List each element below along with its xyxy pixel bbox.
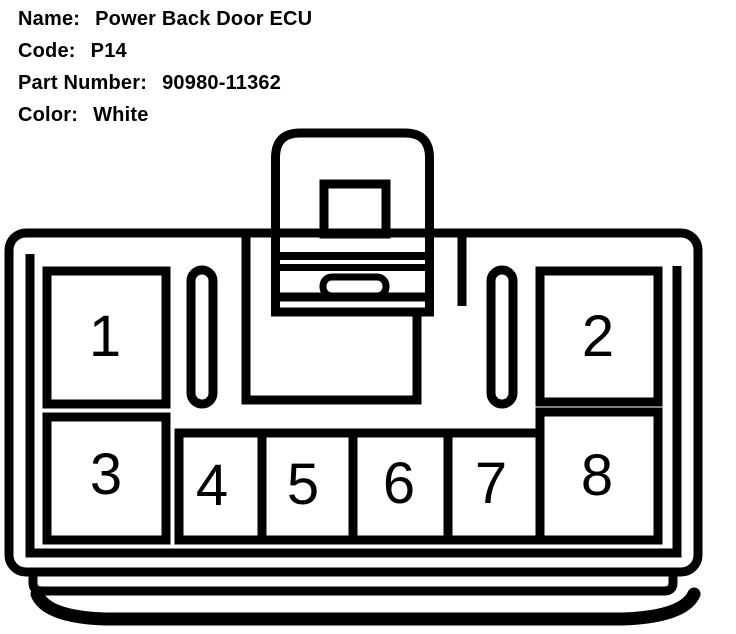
code-label: Code: xyxy=(18,35,76,67)
latch-handle xyxy=(323,277,386,296)
base-skirt xyxy=(33,574,673,591)
part-number-value: 90980-11362 xyxy=(162,67,281,99)
latch-window xyxy=(324,184,386,234)
pin-number-1: 1 xyxy=(89,304,121,369)
pin-number-2: 2 xyxy=(582,304,614,369)
info-row-color: Color: White xyxy=(18,99,312,131)
pin-number-6: 6 xyxy=(383,451,415,516)
part-number-label: Part Number: xyxy=(18,67,147,99)
base-lip xyxy=(37,594,694,619)
connector-pinout-page: 1 2 3 4 5 6 7 8 Name: Power Back Door EC… xyxy=(0,0,736,634)
info-row-part-number: Part Number: 90980-11362 xyxy=(18,67,312,99)
code-value: P14 xyxy=(91,35,127,67)
pin-number-5: 5 xyxy=(287,452,319,517)
latch-outline xyxy=(276,133,430,312)
name-label: Name: xyxy=(18,3,80,35)
guide-slot-right xyxy=(491,270,513,404)
color-value: White xyxy=(93,99,148,131)
color-label: Color: xyxy=(18,99,78,131)
connector-info: Name: Power Back Door ECU Code: P14 Part… xyxy=(18,3,312,131)
pin-number-4: 4 xyxy=(196,453,228,518)
info-row-code: Code: P14 xyxy=(18,35,312,67)
pin-number-7: 7 xyxy=(475,451,507,516)
guide-slot-left xyxy=(191,270,213,404)
name-value: Power Back Door ECU xyxy=(95,3,312,35)
info-row-name: Name: Power Back Door ECU xyxy=(18,3,312,35)
pin-number-8: 8 xyxy=(581,443,613,508)
pin-number-3: 3 xyxy=(90,442,122,507)
